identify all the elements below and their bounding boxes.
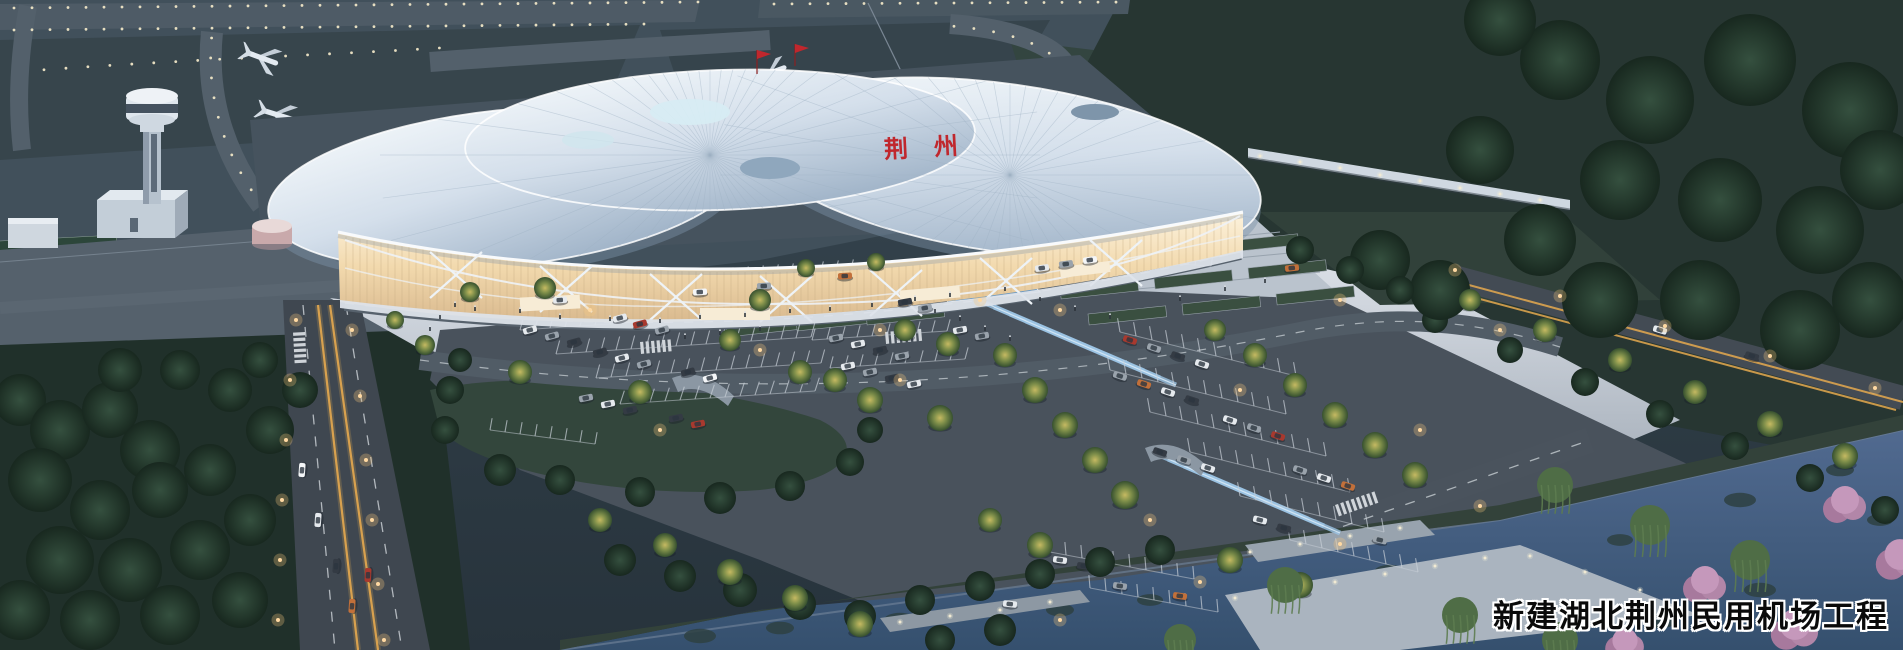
tree-dark [1796, 464, 1824, 492]
pedestrian-head [871, 301, 873, 303]
lily-pad [1607, 534, 1633, 546]
lamp-light [1498, 328, 1502, 332]
tree-lit [1052, 412, 1078, 438]
edge-light [283, 26, 286, 29]
tree-dark [1704, 14, 1796, 106]
tree-lit [588, 508, 612, 532]
tower-cab-ring [129, 114, 175, 126]
pedestrian-head [429, 325, 431, 327]
tree-dark [1580, 140, 1660, 220]
tree-lit [508, 360, 532, 384]
edge-light [130, 63, 133, 66]
lamp-light [294, 318, 298, 322]
tree-lit [788, 360, 812, 384]
tree-dark [26, 526, 94, 594]
pedestrian-body [439, 315, 441, 319]
deck-light [999, 609, 1002, 612]
cherry-blob [1831, 486, 1859, 514]
edge-light [247, 5, 250, 8]
edge-light [989, 1, 992, 4]
edge-light [809, 2, 812, 5]
pedestrian-head [719, 329, 721, 331]
tree-dark [170, 520, 230, 580]
edge-light [917, 2, 920, 5]
edge-light [211, 5, 214, 8]
deck-light [1049, 601, 1052, 604]
edge-light [265, 4, 268, 7]
lamp-light [898, 378, 902, 382]
tree-dark [1336, 256, 1364, 284]
lamp-light [1238, 388, 1242, 392]
edge-light [121, 28, 124, 31]
pedestrian-head [1039, 295, 1041, 297]
crosswalk-bar [293, 337, 305, 341]
edge-light [157, 27, 160, 30]
tree-dark [436, 376, 464, 404]
tree-lit [1217, 547, 1243, 573]
tree-lit [1459, 289, 1481, 311]
edge-light [229, 5, 232, 8]
tree-lit [847, 611, 873, 637]
pedestrian-body [454, 303, 456, 307]
lamp-light [276, 618, 280, 622]
tree-dark [1871, 496, 1899, 524]
pedestrian-body [1179, 297, 1181, 301]
lamp-light [758, 348, 762, 352]
edge-light [463, 24, 466, 27]
edge-light [899, 2, 902, 5]
pedestrian-head [984, 325, 986, 327]
deck-light [899, 621, 902, 624]
tree-lit [857, 387, 883, 413]
edge-light [86, 65, 89, 68]
tree-dark [1504, 204, 1576, 276]
tree-dark [140, 585, 200, 645]
edge-light [445, 25, 448, 28]
edge-light [209, 57, 212, 60]
tree-dark [965, 571, 995, 601]
edge-light [223, 135, 226, 138]
car-glass [696, 290, 703, 295]
edge-light [553, 2, 556, 5]
deck-light [1484, 557, 1487, 560]
tower-base-roof [97, 190, 188, 200]
lamp-light [1058, 618, 1062, 622]
edge-light [607, 23, 610, 26]
tree-dark [1497, 337, 1523, 363]
car-glass [1288, 265, 1295, 270]
edge-light [355, 4, 358, 7]
edge-light [463, 3, 466, 6]
edge-light [589, 2, 592, 5]
car-glass [316, 517, 321, 524]
tree-lit [1533, 318, 1557, 342]
taxiway [19, 6, 28, 150]
tree-dark [1286, 236, 1314, 264]
edge-light [643, 23, 646, 26]
deck-light [1259, 155, 1262, 158]
pedestrian-head [439, 313, 441, 315]
lamp-light [1418, 428, 1422, 432]
tree-lit [782, 585, 808, 611]
car-glass [1006, 601, 1013, 606]
edge-light [427, 25, 430, 28]
tree-dark [1721, 432, 1749, 460]
edge-light [337, 4, 340, 7]
tree-lit [1243, 343, 1267, 367]
pedestrian-head [1074, 305, 1076, 307]
edge-light [517, 24, 520, 27]
tree-dark [132, 462, 188, 518]
edge-light [284, 55, 287, 58]
willow-strand [1180, 640, 1181, 650]
tree-dark [184, 444, 236, 496]
edge-light [139, 27, 142, 30]
edge-light [1097, 1, 1100, 4]
pedestrian-head [829, 305, 831, 307]
tree-lit [1322, 402, 1348, 428]
tree-lit [1204, 319, 1226, 341]
tree-dark [604, 544, 636, 576]
edge-light [193, 5, 196, 8]
edge-light [625, 23, 628, 26]
tree-lit [653, 533, 677, 557]
edge-light [67, 28, 70, 31]
edge-light [218, 58, 221, 61]
pedestrian-head [659, 317, 661, 319]
pedestrian-body [984, 327, 986, 331]
tree-lit [927, 405, 953, 431]
tree-dark [212, 572, 268, 628]
tree-dark [1776, 186, 1864, 274]
edge-light [337, 26, 340, 29]
tree-dark [905, 585, 935, 615]
tree-lit [978, 508, 1002, 532]
edge-light [157, 5, 160, 8]
edge-light [499, 2, 502, 5]
willow-strand [1560, 640, 1561, 650]
edge-light [49, 28, 52, 31]
tree-dark [1446, 116, 1514, 184]
edge-light [992, 30, 995, 33]
tree-lit [719, 329, 741, 351]
pedestrian-body [699, 315, 701, 319]
edge-light [1025, 1, 1028, 4]
lamp-light [878, 328, 882, 332]
deck-light [1539, 199, 1542, 202]
tree-lit [823, 368, 847, 392]
car-glass [366, 572, 371, 579]
deck-light [1384, 573, 1387, 576]
tree-lit [1111, 481, 1139, 509]
lamp-light [1558, 294, 1562, 298]
edge-light [1043, 1, 1046, 4]
lamp-light [1338, 298, 1342, 302]
tree-dark [625, 477, 655, 507]
deck-light [1339, 167, 1342, 170]
lamp-light [1338, 542, 1342, 546]
lamp-light [358, 394, 362, 398]
tree-dark [1145, 535, 1175, 565]
tree-lit [1683, 380, 1707, 404]
tree-dark [60, 590, 120, 650]
edge-light [481, 2, 484, 5]
tree-lit [1283, 373, 1307, 397]
tree-lit [717, 559, 743, 585]
car-glass [841, 274, 848, 279]
tree-lit [628, 380, 652, 404]
edge-light [85, 28, 88, 31]
tree-lit [1027, 532, 1053, 558]
tree-dark [70, 480, 130, 540]
pedestrian-head [684, 333, 686, 335]
edge-light [607, 1, 610, 4]
edge-light [306, 54, 309, 57]
lamp-light [1873, 386, 1877, 390]
lamp-light [1058, 308, 1062, 312]
pedestrian-body [949, 293, 951, 297]
deck-light [1349, 535, 1352, 538]
pedestrian-body [1004, 287, 1006, 291]
tree-dark [208, 368, 252, 412]
edge-light [697, 1, 700, 4]
tree-lit [936, 332, 960, 356]
edge-light [372, 50, 375, 53]
edge-light [283, 4, 286, 7]
pedestrian-head [609, 315, 611, 317]
tree-lit [460, 282, 480, 302]
pedestrian-body [1009, 337, 1011, 341]
tower-shaft-shade [143, 128, 149, 204]
tree-lit [1362, 432, 1388, 458]
pedestrian-body [829, 307, 831, 311]
tree-lit [1757, 411, 1783, 437]
edge-light [210, 37, 213, 40]
pedestrian-body [609, 317, 611, 321]
edge-light [247, 26, 250, 29]
edge-light [230, 154, 233, 157]
round-building-roof [252, 219, 292, 233]
small-structure-roof [8, 218, 58, 224]
lamp-light [278, 558, 282, 562]
edge-light [328, 52, 331, 55]
edge-light [972, 27, 975, 30]
edge-light [1012, 35, 1015, 38]
cherry-blob [1691, 566, 1719, 594]
tree-dark [545, 465, 575, 495]
lamp-light [1478, 504, 1482, 508]
lily-pad [1724, 493, 1756, 507]
edge-light [416, 48, 419, 51]
lily-pad [1137, 594, 1163, 606]
pedestrian-body [519, 309, 521, 313]
edge-light [175, 5, 178, 8]
edge-light [139, 5, 142, 8]
tree-dark [704, 482, 736, 514]
lamp-light [1198, 580, 1202, 584]
pedestrian-body [744, 313, 746, 317]
roof-oculus [1071, 104, 1119, 120]
deck-light [1499, 193, 1502, 196]
pedestrian-body [1264, 279, 1266, 283]
project-caption: 新建湖北荆州民用机场工程 [1493, 591, 1889, 636]
edge-light [67, 6, 70, 9]
deck-light [1249, 551, 1252, 554]
tree-lit [1608, 348, 1632, 372]
edge-light [373, 3, 376, 6]
lamp-light [1663, 324, 1667, 328]
edge-light [625, 1, 628, 4]
pedestrian-body [1074, 307, 1076, 311]
pedestrian-head [789, 307, 791, 309]
deck-light [1399, 527, 1402, 530]
tree-dark [8, 448, 72, 512]
pedestrian-body [1039, 297, 1041, 301]
lamp-light [350, 328, 354, 332]
tree-dark [242, 342, 278, 378]
edge-light [643, 1, 646, 4]
edge-light [845, 2, 848, 5]
deck-light [1299, 161, 1302, 164]
edge-light [301, 26, 304, 29]
tree-dark [1085, 547, 1115, 577]
edge-light [953, 2, 956, 5]
edge-light [213, 96, 216, 99]
tree-dark [431, 416, 459, 444]
edge-light [953, 25, 956, 28]
tree-lit [894, 319, 916, 341]
tree-dark [448, 348, 472, 372]
edge-light [679, 1, 682, 4]
tree-dark [484, 454, 516, 486]
tree-lit [797, 259, 815, 277]
tree-dark [1646, 400, 1674, 428]
edge-light [350, 51, 353, 54]
pedestrian-body [659, 319, 661, 323]
edge-light [409, 25, 412, 28]
tree-dark [246, 406, 294, 454]
edge-light [355, 25, 358, 28]
edge-light [301, 4, 304, 7]
tree-dark [836, 448, 864, 476]
edge-light [239, 171, 242, 174]
edge-light [373, 25, 376, 28]
edge-light [193, 27, 196, 30]
pedestrian-head [934, 307, 936, 309]
lamp-light [1768, 354, 1772, 358]
roof-oculus [740, 157, 800, 179]
car-glass [556, 298, 563, 303]
roof-sign-text: 荆州 [883, 132, 984, 164]
tree-lit [1022, 377, 1048, 403]
pedestrian-head [759, 325, 761, 327]
edge-light [391, 25, 394, 28]
tree-dark [98, 348, 142, 392]
pedestrian-body [914, 297, 916, 301]
pedestrian-body [959, 317, 961, 321]
tree-dark [1606, 56, 1694, 144]
tree-dark [1562, 262, 1638, 338]
pedestrian-head [454, 301, 456, 303]
deck-light [1434, 565, 1437, 568]
willow-strand [1574, 640, 1575, 650]
tree-dark [1571, 368, 1599, 396]
small-structure [8, 222, 58, 248]
edge-light [1048, 52, 1051, 55]
pedestrian-body [474, 307, 476, 311]
edge-light [827, 2, 830, 5]
tree-lit [1082, 447, 1108, 473]
edge-light [571, 23, 574, 26]
pedestrian-head [1179, 295, 1181, 297]
tree-lit [749, 289, 771, 311]
pedestrian-head [559, 313, 561, 315]
willow-strand [1186, 640, 1187, 650]
lamp-light [370, 518, 374, 522]
pedestrian-body [871, 303, 873, 307]
edge-light [394, 49, 397, 52]
car-glass [760, 284, 767, 289]
pedestrian-head [519, 307, 521, 309]
edge-light [773, 3, 776, 6]
edge-light [65, 67, 68, 70]
pedestrian-head [914, 295, 916, 297]
lamp-light [284, 438, 288, 442]
lamp-light [280, 498, 284, 502]
willow-strand [1174, 640, 1175, 650]
edge-light [217, 116, 220, 119]
tree-lit [386, 311, 404, 329]
edge-light [319, 4, 322, 7]
edge-light [1061, 1, 1064, 4]
edge-light [589, 23, 592, 26]
edge-light [229, 27, 232, 30]
tree-dark [857, 417, 883, 443]
edge-light [935, 2, 938, 5]
edge-light [445, 3, 448, 6]
edge-light [661, 1, 664, 4]
lamp-light [1148, 518, 1152, 522]
tree-lit [534, 277, 556, 299]
pedestrian-body [789, 309, 791, 313]
tree-dark [1660, 260, 1740, 340]
tree-lit [993, 343, 1017, 367]
car-glass [300, 467, 305, 474]
tree-dark [984, 614, 1016, 646]
lamp-light [978, 298, 982, 302]
tree-dark [1386, 276, 1414, 304]
tower-cab-roof [126, 88, 178, 104]
lily-pad [684, 629, 716, 643]
edge-light [152, 61, 155, 64]
edge-light [85, 6, 88, 9]
pedestrian-body [759, 327, 761, 331]
tower-window-strip [151, 134, 157, 192]
pedestrian-body [559, 315, 561, 319]
pedestrian-head [1009, 335, 1011, 337]
tree-dark [160, 350, 200, 390]
tree-dark [775, 471, 805, 501]
willow-strand [1168, 640, 1169, 650]
willow-strand [1553, 640, 1554, 650]
edge-light [553, 24, 556, 27]
willow-strand [1546, 640, 1547, 650]
lamp-light [1453, 268, 1457, 272]
roof-skylight [562, 131, 614, 149]
pedestrian-body [429, 327, 431, 331]
edge-light [211, 27, 214, 30]
pedestrian-body [684, 335, 686, 339]
